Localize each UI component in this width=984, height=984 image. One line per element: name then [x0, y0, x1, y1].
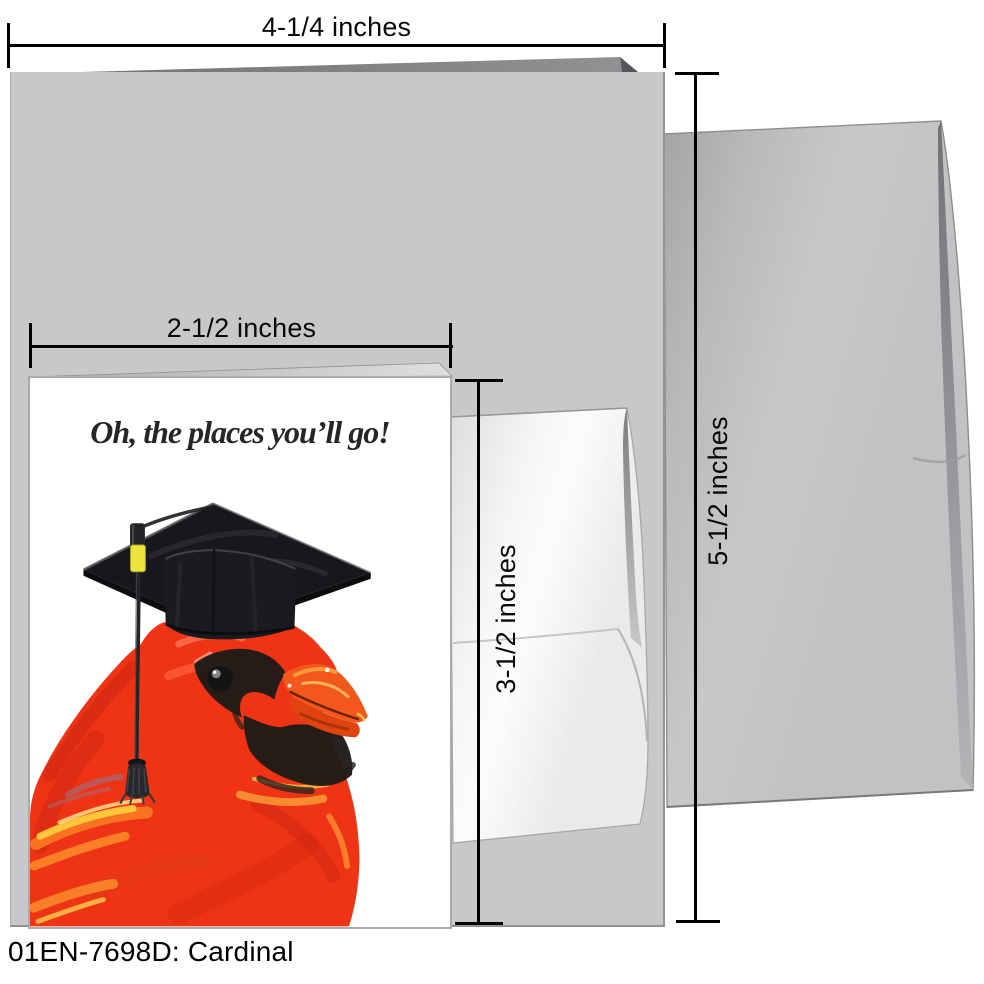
cardinal-illustration [30, 378, 450, 927]
tassel-yellow-clip [131, 545, 146, 572]
dim-label-large-height: 5-1/2 inches [704, 411, 732, 571]
dim-line-small-height [477, 380, 480, 925]
dim-label-small-height: 3-1/2 inches [492, 539, 520, 699]
card-headline: Oh, the places you’ll go! [30, 414, 450, 451]
product-image-stage: Oh, the places you’ll go! 4-1/4 inches 2… [0, 0, 984, 984]
dim-tick-large-width-right [663, 23, 666, 68]
dim-tick-small-width-right [449, 323, 452, 368]
large-envelope-graphic [620, 108, 984, 872]
large-card-fold-corner [620, 57, 638, 72]
dim-tick-large-width-left [7, 23, 10, 68]
dim-line-large-height [694, 73, 697, 922]
dim-tick-large-height-top [675, 72, 719, 75]
dim-line-small-width [30, 345, 453, 348]
small-envelope-graphic [440, 396, 660, 848]
product-code-label: 01EN-7698D: Cardinal [8, 936, 294, 968]
dim-tick-small-height-bottom [455, 922, 503, 925]
dim-label-small-width: 2-1/2 inches [30, 314, 453, 342]
small-card: Oh, the places you’ll go! [28, 376, 452, 929]
graduation-cap [83, 503, 370, 639]
dim-line-large-width [8, 44, 665, 47]
eye [207, 666, 233, 692]
dim-tick-small-height-top [455, 379, 503, 382]
dim-tick-large-height-bottom [676, 920, 720, 923]
dim-tick-small-width-left [29, 323, 32, 368]
tassel-cord [137, 573, 139, 762]
dim-label-large-width: 4-1/4 inches [8, 13, 665, 41]
